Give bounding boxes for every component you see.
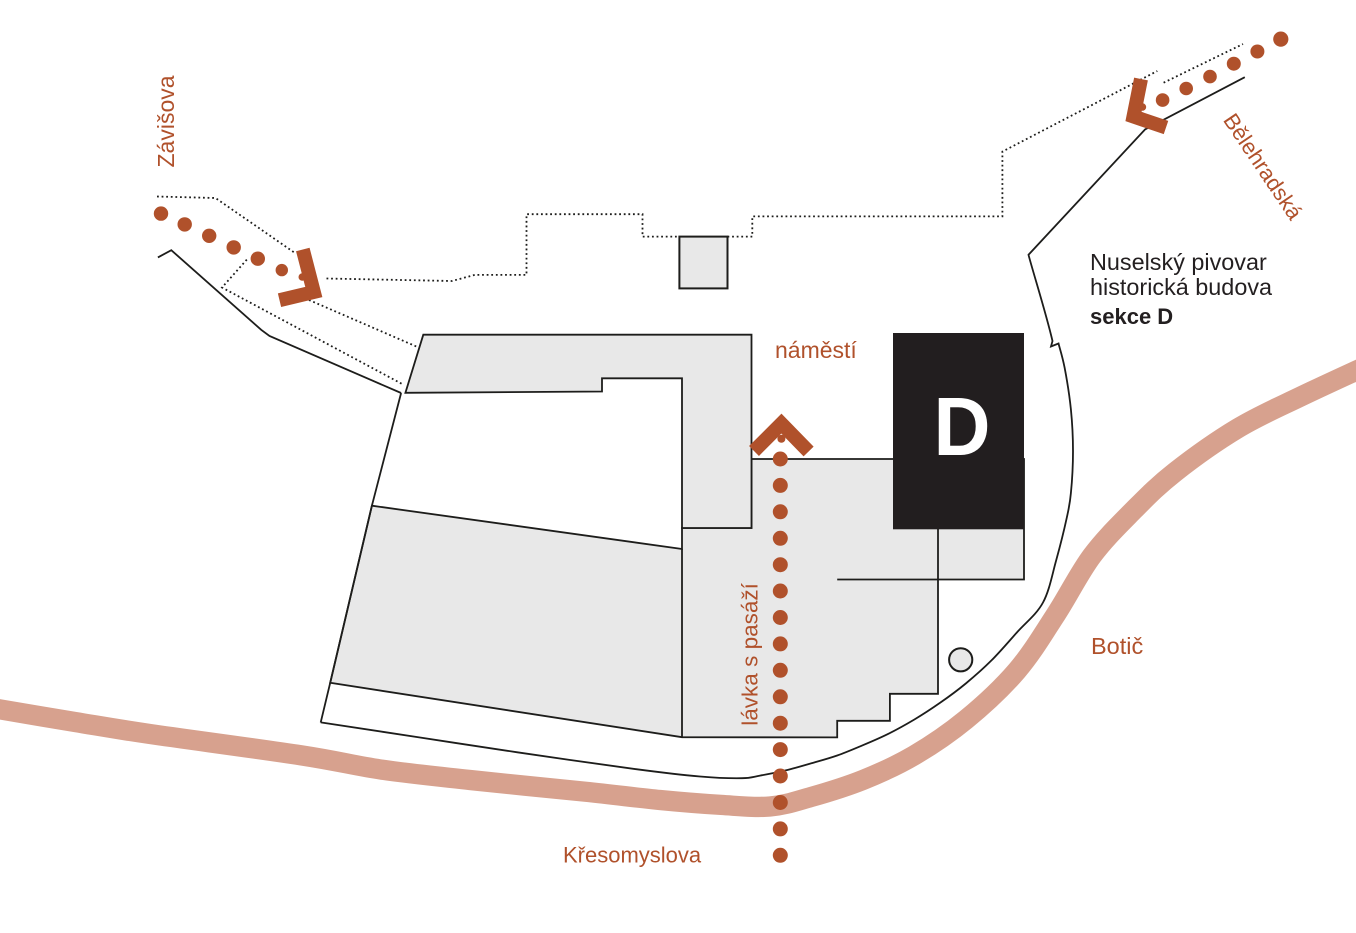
svg-text:Botič: Botič: [1091, 633, 1143, 659]
svg-text:lávka s pasáží: lávka s pasáží: [738, 582, 763, 725]
svg-text:historická budova: historická budova: [1090, 274, 1273, 300]
svg-text:D: D: [934, 380, 991, 473]
svg-text:sekce D: sekce D: [1090, 304, 1173, 329]
svg-text:Křesomyslova: Křesomyslova: [563, 843, 702, 868]
svg-text:náměstí: náměstí: [775, 337, 857, 363]
svg-text:Závišova: Závišova: [153, 75, 179, 167]
svg-text:Nuselský pivovar: Nuselský pivovar: [1090, 249, 1267, 275]
